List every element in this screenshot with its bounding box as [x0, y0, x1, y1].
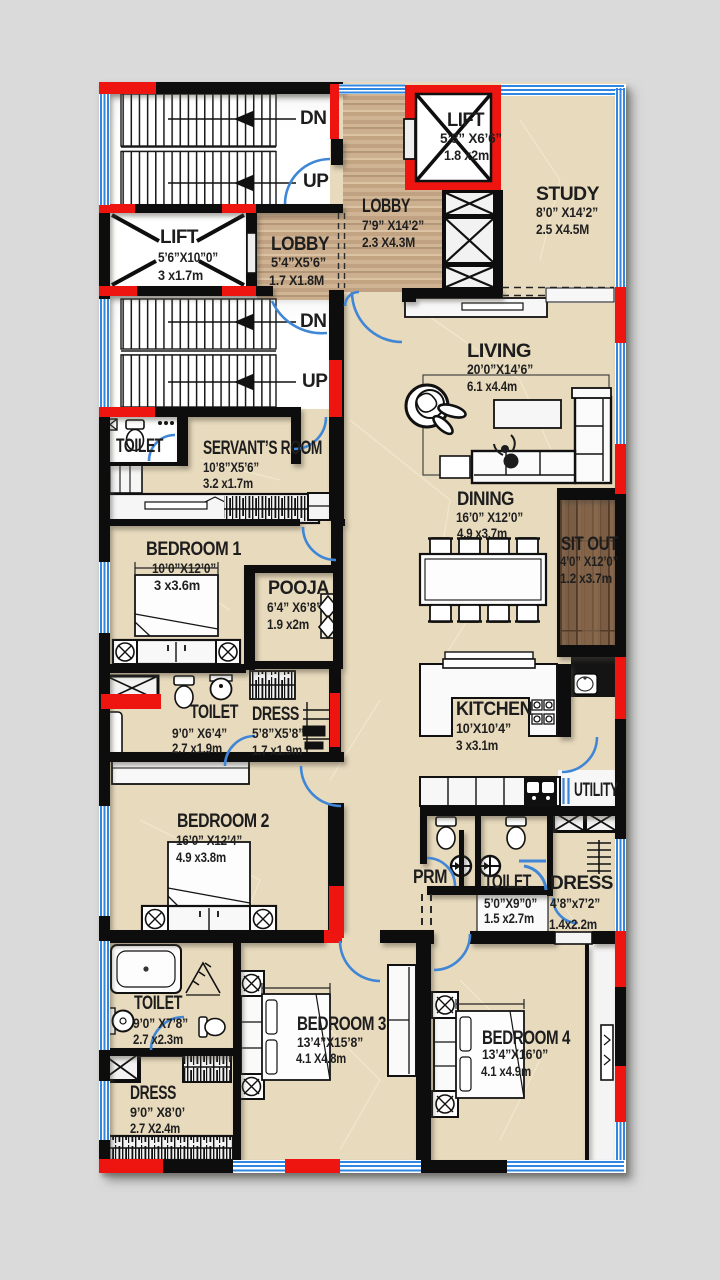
svg-text:4’8”x7’2”: 4’8”x7’2”	[550, 896, 600, 911]
svg-text:5’8” X6’6”: 5’8” X6’6”	[440, 131, 502, 146]
svg-text:2.7 x1.9m: 2.7 x1.9m	[172, 741, 222, 756]
svg-text:POOJA: POOJA	[268, 578, 330, 599]
svg-text:5’6”X10”0”: 5’6”X10”0”	[158, 250, 218, 265]
svg-text:DN: DN	[300, 108, 326, 129]
svg-text:4’0” X12’0”: 4’0” X12’0”	[560, 554, 618, 569]
svg-text:DRESS: DRESS	[130, 1083, 176, 1104]
svg-text:9’0” X7’8”: 9’0” X7’8”	[133, 1016, 188, 1031]
svg-text:4.1 x4.9m: 4.1 x4.9m	[481, 1064, 531, 1079]
svg-text:BEDROOM 1: BEDROOM 1	[146, 539, 242, 560]
svg-text:7’9” X14’2”: 7’9” X14’2”	[362, 218, 424, 233]
svg-text:3 x3.1m: 3 x3.1m	[456, 738, 498, 753]
svg-text:9’0” X8’0’: 9’0” X8’0’	[130, 1105, 185, 1120]
svg-text:KITCHEN: KITCHEN	[456, 699, 532, 720]
svg-text:5’4”X5’6”: 5’4”X5’6”	[271, 255, 326, 270]
svg-text:BEDROOM 2: BEDROOM 2	[177, 811, 269, 832]
svg-text:20’0”X14’6”: 20’0”X14’6”	[467, 362, 533, 377]
svg-text:3.2 x1.7m: 3.2 x1.7m	[203, 476, 253, 491]
svg-text:3 x3.6m: 3 x3.6m	[154, 578, 200, 593]
svg-text:PRM: PRM	[413, 867, 447, 888]
svg-text:5’8”X5’8”: 5’8”X5’8”	[252, 726, 304, 741]
svg-text:1.8 x2m: 1.8 x2m	[444, 148, 489, 163]
svg-text:1.7 X1.8M: 1.7 X1.8M	[269, 273, 324, 288]
svg-text:1.7 x1.9m: 1.7 x1.9m	[252, 743, 302, 758]
svg-text:10’8”X5’6”: 10’8”X5’6”	[203, 460, 259, 475]
svg-text:SIT OUT: SIT OUT	[561, 534, 619, 555]
svg-text:TOILET: TOILET	[116, 436, 164, 457]
svg-text:8’0” X14’2”: 8’0” X14’2”	[536, 205, 598, 220]
svg-text:13’4”X15’8”: 13’4”X15’8”	[297, 1035, 363, 1050]
svg-text:5’0”X9”0”: 5’0”X9”0”	[484, 896, 537, 911]
svg-text:10’X10’4”: 10’X10’4”	[456, 721, 511, 736]
svg-text:1.5 x2.7m: 1.5 x2.7m	[484, 911, 534, 926]
svg-text:4.1 X4.8m: 4.1 X4.8m	[296, 1051, 346, 1066]
svg-text:UP: UP	[302, 371, 328, 392]
svg-text:DRESS: DRESS	[252, 704, 299, 725]
svg-text:10’0”X12’0”: 10’0”X12’0”	[152, 561, 216, 576]
svg-text:STUDY: STUDY	[536, 184, 600, 205]
svg-text:LIVING: LIVING	[467, 341, 531, 362]
svg-text:LIFT: LIFT	[160, 227, 199, 248]
svg-text:DRESS: DRESS	[550, 873, 613, 894]
svg-text:LIFT: LIFT	[447, 110, 485, 131]
svg-text:TOILET: TOILET	[484, 872, 532, 893]
svg-text:16’0” X12’4”: 16’0” X12’4”	[176, 833, 242, 848]
svg-text:13’4”X16’0”: 13’4”X16’0”	[482, 1047, 548, 1062]
svg-text:UP: UP	[303, 171, 329, 192]
svg-text:1.4x2.2m: 1.4x2.2m	[549, 917, 597, 932]
svg-text:UTILITY: UTILITY	[574, 780, 619, 801]
svg-text:6.1 x4.4m: 6.1 x4.4m	[467, 379, 517, 394]
svg-text:DINING: DINING	[457, 489, 514, 510]
svg-text:4.9 x3.7m: 4.9 x3.7m	[457, 526, 507, 541]
svg-text:TOILET: TOILET	[190, 702, 239, 723]
svg-text:6’4” X6’8”: 6’4” X6’8”	[267, 600, 322, 615]
svg-text:TOILET: TOILET	[134, 993, 183, 1014]
svg-text:SERVANT’S ROOM: SERVANT’S ROOM	[203, 438, 322, 459]
svg-text:4.9 x3.8m: 4.9 x3.8m	[176, 850, 226, 865]
svg-text:BEDROOM 3: BEDROOM 3	[297, 1014, 386, 1035]
svg-text:LOBBY: LOBBY	[271, 234, 330, 255]
svg-text:2.7 X2.4m: 2.7 X2.4m	[130, 1121, 180, 1136]
svg-text:3 x1.7m: 3 x1.7m	[158, 268, 203, 283]
svg-text:BEDROOM 4: BEDROOM 4	[482, 1028, 571, 1049]
svg-text:9’0” X6’4”: 9’0” X6’4”	[172, 726, 227, 741]
svg-text:LOBBY: LOBBY	[362, 196, 411, 217]
svg-text:1.2 x3.7m: 1.2 x3.7m	[560, 571, 612, 586]
svg-text:2.7 x2.3m: 2.7 x2.3m	[133, 1032, 183, 1047]
svg-text:1.9 x2m: 1.9 x2m	[267, 617, 309, 632]
svg-text:2.5 X4.5M: 2.5 X4.5M	[536, 222, 589, 237]
svg-text:2.3 X4.3M: 2.3 X4.3M	[362, 235, 415, 250]
svg-text:16’0” X12’0”: 16’0” X12’0”	[456, 510, 523, 525]
svg-text:DN: DN	[300, 311, 326, 332]
